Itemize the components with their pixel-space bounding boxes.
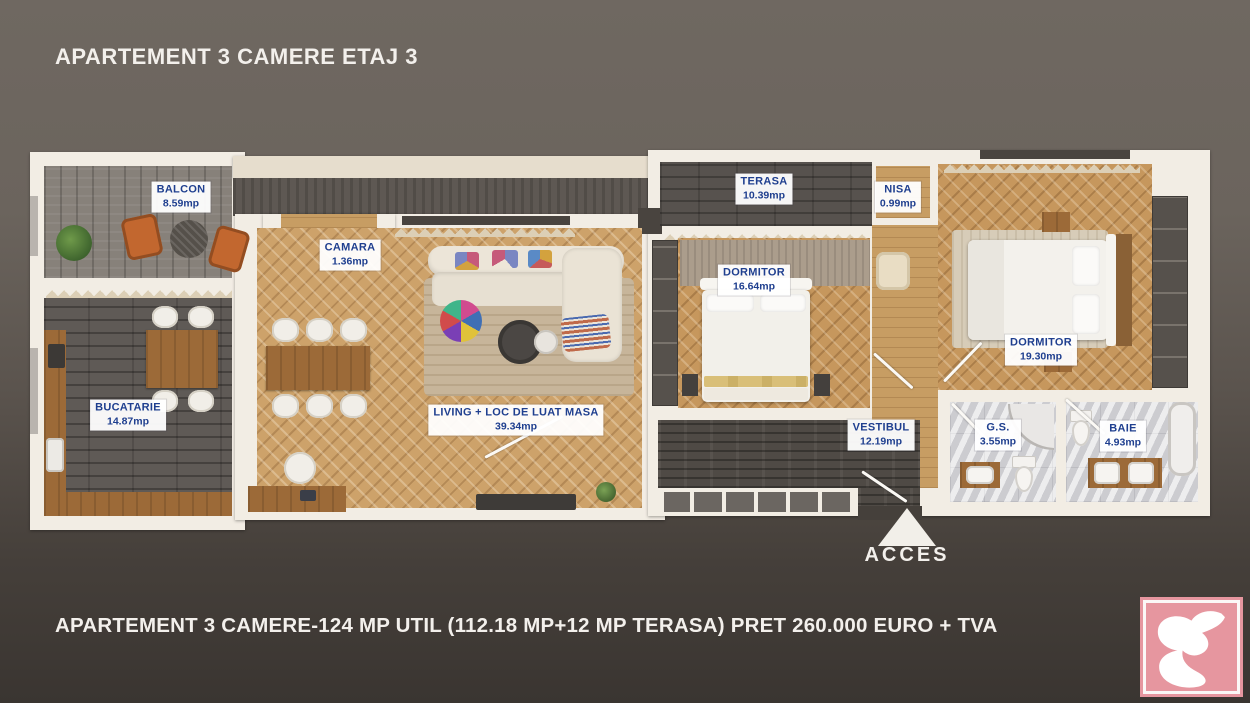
desk-laptop <box>300 490 316 501</box>
bed1-pillow <box>760 294 806 312</box>
dormitor2-wardrobe <box>1152 196 1188 388</box>
wall-top-bar <box>233 156 665 178</box>
bed2-nightstand-top <box>1042 212 1070 232</box>
baie-bathtub <box>1168 402 1196 476</box>
bed2-headboard-bench <box>1116 234 1132 346</box>
bed1-nightstand-right <box>814 374 830 396</box>
acces-arrow-icon <box>878 508 936 546</box>
room-label-living: LIVING + LOC DE LUAT MASA 39.34mp <box>428 405 603 436</box>
logo-border <box>1143 600 1240 694</box>
bed2-duvet-fold <box>968 240 1004 340</box>
curtain-dormitor2 <box>944 164 1140 173</box>
sofa-pillow <box>492 250 518 268</box>
living-plant <box>596 482 616 502</box>
bed1-pillow <box>706 294 754 312</box>
room-label-vestibul: VESTIBUL 12.19mp <box>848 420 915 451</box>
bed2-pillow <box>1072 294 1100 334</box>
room-label-gs: G.S. 3.55mp <box>975 420 1021 451</box>
dining-chair <box>340 318 367 342</box>
kitchen-counter-bottom <box>66 492 232 516</box>
kitchen-sink <box>46 438 64 472</box>
window-living <box>402 216 570 225</box>
kitchen-stove <box>48 344 65 368</box>
room-label-bucatarie: BUCATARIE 14.87mp <box>90 400 166 431</box>
kitchen-chair <box>188 390 214 412</box>
page-title: APARTEMENT 3 CAMERE ETAJ 3 <box>55 44 418 70</box>
baie-sink <box>1094 462 1120 484</box>
tv-stand <box>476 494 576 510</box>
dormitor1-wardrobe <box>652 240 678 406</box>
dove-icon <box>1146 603 1237 691</box>
desk <box>248 486 346 512</box>
room-label-dormitor2: DORMITOR 19.30mp <box>1005 335 1077 366</box>
kitchen-chair <box>188 306 214 328</box>
bed2-pillow <box>1072 246 1100 286</box>
footer-summary: APARTEMENT 3 CAMERE-124 MP UTIL (112.18 … <box>55 614 998 638</box>
window-kitchen-left <box>30 348 38 434</box>
room-label-terasa: TERASA 10.39mp <box>735 174 792 205</box>
room-label-baie: BAIE 4.93mp <box>1100 421 1146 452</box>
gs-sink <box>966 466 994 484</box>
dining-chair <box>272 394 299 418</box>
room-label-nisa: NISA 0.99mp <box>875 182 921 213</box>
window-dormitor2 <box>980 150 1130 159</box>
dining-table <box>266 346 370 390</box>
dining-chair <box>306 394 333 418</box>
desk-chair <box>284 452 316 484</box>
side-table <box>534 330 558 354</box>
dining-chair <box>340 394 367 418</box>
room-label-camara: CAMARA 1.36mp <box>320 240 381 271</box>
roof-shadow-band <box>233 178 665 216</box>
bed1-blanket <box>704 376 808 387</box>
sofa-pillow <box>455 252 479 270</box>
bed2-headboard <box>1106 234 1116 346</box>
hallway-armchair <box>876 252 910 290</box>
entry-closet-tiles <box>662 490 856 514</box>
dining-chair <box>272 318 299 342</box>
room-label-dormitor1: DORMITOR 16.64mp <box>718 265 790 296</box>
floorplan-page: APARTEMENT 3 CAMERE ETAJ 3 <box>0 0 1250 703</box>
bed1-nightstand-left <box>682 374 698 396</box>
kitchen-chair <box>152 306 178 328</box>
acces-label: ACCES <box>857 544 957 567</box>
living-pouf <box>440 300 482 342</box>
balcony-table <box>170 220 208 258</box>
curtain-living <box>395 228 575 237</box>
bed1-folded-sheet <box>704 388 808 400</box>
dining-chair <box>306 318 333 342</box>
balcony-plant <box>56 225 92 261</box>
lounge-chair-striped <box>560 314 611 353</box>
sofa-pillow <box>528 250 552 268</box>
brand-logo <box>1140 597 1243 697</box>
room-label-balcon: BALCON 8.59mp <box>152 182 211 213</box>
window-balcon-left <box>30 196 38 256</box>
kitchen-table <box>146 330 218 388</box>
baie-sink <box>1128 462 1154 484</box>
